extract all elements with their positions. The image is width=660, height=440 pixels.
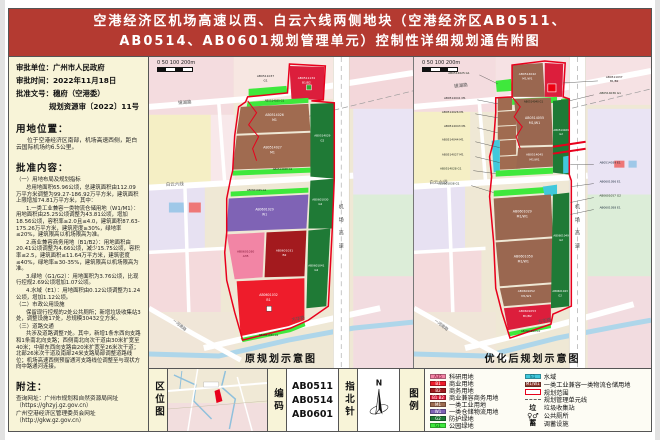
svg-text:B1/B2: B1/B2 [523, 314, 532, 318]
planning-notice-sheet: 空港经济区机场高速以西、白云六线两侧地块（空港经济区AB0511、 AB0514… [8, 8, 652, 432]
location-minimap-svg [168, 369, 267, 431]
location-minimap [168, 369, 268, 431]
info-panel: 审批单位：广州市人民政府 审批时间：2022年11月18日 批准文号：穗府（空港… [9, 57, 149, 431]
page-title-line1: 空港经济区机场高速以西、白云六线两侧地块（空港经济区AB0511、 [9, 12, 651, 32]
legend-swatch: B2 [430, 388, 446, 394]
approval-doc-number-2: 规划资源审〔2022〕11号 [16, 100, 141, 113]
legend-swatch: G1 [430, 423, 446, 429]
svg-text:A35: A35 [243, 254, 249, 258]
svg-text:AB0601056 E1: AB0601056 E1 [600, 180, 621, 184]
content-heading: 批准内容： [16, 160, 141, 174]
legend-column-1: A35科研用地B1商业用地B2商务用地B1 B2商业兼容商务用地M1一类工业用地… [430, 373, 520, 427]
scalebar-text: 0 50 100 200m [157, 60, 195, 66]
approval-date: 审批时间：2022年11月18日 [16, 74, 141, 87]
north-arrow-icon: N [362, 374, 396, 426]
svg-text:B1/B2: B1/B2 [610, 79, 619, 83]
svg-text:AB0514039 E1: AB0514039 E1 [600, 161, 621, 165]
svg-text:AB0601025 G1: AB0601025 G1 [247, 188, 267, 192]
map-title-original: 原规划示意图 [149, 350, 413, 365]
svg-text:AB0514028 G1: AB0514028 G1 [440, 167, 462, 171]
svg-text:G1: G1 [263, 78, 267, 82]
svg-text:G2: G2 [314, 268, 318, 272]
svg-text:W1: W1 [262, 212, 267, 216]
svg-text:AB0601050: AB0601050 [514, 254, 533, 258]
svg-text:G2: G2 [318, 202, 322, 206]
legend-swatch: W1 [430, 409, 446, 415]
svg-text:AB0601030: AB0601030 [312, 198, 328, 202]
legend-swatch: B1 B2 [430, 395, 446, 401]
legend-item: G1公园绿地 [430, 422, 520, 429]
svg-text:AB0514042: AB0514042 [519, 72, 536, 76]
svg-text:AB0514027: AB0514027 [263, 146, 281, 150]
legend-dashed-line [525, 399, 541, 400]
legend-swatch: E1 [525, 374, 541, 380]
page-edge-right [655, 0, 660, 440]
svg-text:AB0514044 M1: AB0514044 M1 [442, 138, 464, 142]
svg-text:AB0514040 G1: AB0514040 G1 [524, 99, 544, 103]
scalebar: 0 50 100 200m [157, 61, 195, 72]
svg-text:AB0514036 G1: AB0514036 G1 [599, 91, 621, 95]
code-label: 编码 [268, 369, 287, 431]
svg-text:G2: G2 [320, 138, 324, 142]
svg-text:M1: M1 [272, 118, 277, 122]
svg-text:M1/W1: M1/W1 [522, 77, 532, 81]
notes-heading: 附注： [16, 379, 141, 393]
svg-text:B2: B2 [283, 253, 287, 257]
approval-doc-number: 批准文号：穗府（空港委） [16, 87, 141, 100]
svg-text:AB0514026 M1: AB0514026 M1 [442, 110, 464, 114]
svg-text:AB0601049: AB0601049 [553, 233, 569, 237]
svg-text:B1: B1 [266, 298, 270, 302]
svg-text:AB0514041 M1: AB0514041 M1 [444, 96, 466, 100]
svg-text:AB0601030: AB0601030 [237, 249, 254, 253]
legend-item-label: 调蓄设施 [544, 419, 569, 428]
svg-text:AB0601029: AB0601029 [255, 208, 273, 212]
svg-text:N: N [375, 379, 381, 388]
optimized-plan-map-svg: AB0514042M1/W1AB0514025 G1AB0511037B1/B2… [414, 57, 651, 368]
optimized-plan-map: AB0514042M1/W1AB0514025 G1AB0511037B1/B2… [414, 57, 651, 368]
legend-item: G2防护绿地 [430, 415, 520, 422]
map-title-optimized: 优化后规划示意图 [414, 350, 651, 365]
svg-text:AB0514025 G1: AB0514025 G1 [448, 71, 470, 75]
legend-swatch: M1/W1 [525, 382, 541, 388]
page-edge-left [0, 0, 5, 440]
svg-text:G2: G2 [558, 294, 562, 298]
svg-text:AB0514028 G1: AB0514028 G1 [273, 167, 293, 171]
svg-text:B1/B2: B1/B2 [302, 81, 311, 85]
legend-swatch: A35 [430, 374, 446, 380]
svg-text:M1/W1: M1/W1 [518, 259, 529, 263]
content-paragraph: （三）道路交通 [16, 324, 141, 331]
legend-item-label: 公园绿地 [449, 421, 474, 430]
svg-text:AB0514026: AB0514026 [265, 113, 283, 117]
svg-text:AB0601033 G1: AB0601033 G1 [259, 333, 279, 337]
svg-text:AB0514029: AB0514029 [314, 134, 330, 138]
svg-text:高: 高 [339, 229, 344, 236]
legend-item: 蓄调蓄设施 [525, 420, 646, 427]
svg-text:M1/W1: M1/W1 [529, 121, 540, 125]
legend-boundary-swatch [525, 389, 541, 395]
svg-text:M1/W1: M1/W1 [521, 294, 531, 298]
legend-symbol-char: 蓄 [525, 418, 541, 428]
content-paragraph: 4.水域（E1）：用地面积由0.12公顷调整为1.24公顷，增加1.12公顷。 [16, 288, 141, 301]
svg-text:AB0601032: AB0601032 [259, 293, 277, 297]
legend-swatch: B1 [430, 381, 446, 387]
svg-text:AB0601052: AB0601052 [518, 289, 535, 293]
original-plan-map: AB0511037G1AB0511134B1/B2AB0514025 G1AB0… [149, 57, 414, 368]
page-title: 空港经济区机场高速以西、白云六线两侧地块（空港经济区AB0511、 AB0514… [9, 9, 651, 57]
scalebar-bar [422, 67, 458, 72]
svg-text:AB0601058 E1: AB0601058 E1 [600, 206, 621, 210]
legend: A35科研用地B1商业用地B2商务用地B1 B2商业兼容商务用地M1一类工业用地… [425, 369, 651, 431]
scalebar-bar [157, 67, 193, 72]
legend-item: B1商业用地 [430, 380, 520, 387]
svg-text:AB0514025 G1: AB0514025 G1 [265, 99, 285, 103]
svg-text:机: 机 [575, 204, 580, 211]
legend-column-2: E1水域M1/W1一类工业兼容一类物流仓储用地规划范围规划管理单元线垃垃圾收集站… [525, 373, 646, 427]
content-paragraph: 共涉及道路调整7处。其中，新增1条东西向支路和1条南北向支路；西侧南北向次干道由… [16, 331, 141, 371]
compass-label: 指北针 [339, 369, 358, 431]
page-title-line2: AB0514、AB0601规划管理单元）控制性详细规划通告附图 [9, 32, 651, 52]
location-body: 位于空港经济区南部，机场高速西侧，距白云国际机场约6.5公里。 [16, 138, 141, 152]
svg-text:速: 速 [575, 243, 580, 249]
svg-text:AB0514045: AB0514045 [526, 153, 543, 157]
legend-swatch: G2 [430, 416, 446, 422]
scalebar-text: 0 50 100 200m [422, 60, 460, 66]
svg-text:M1: M1 [270, 151, 275, 155]
legend-swatch: M1 [430, 402, 446, 408]
location-heading: 用地位置： [16, 121, 141, 135]
unit-code: AB0511 [292, 381, 338, 392]
svg-text:AB0514027 M1: AB0514027 M1 [442, 153, 464, 157]
svg-text:AB0601043: AB0601043 [552, 289, 568, 293]
svg-text:AB0514043 M1: AB0514043 M1 [444, 124, 466, 128]
svg-text:AB0514029: AB0514029 [553, 128, 569, 132]
svg-text:AB0511037: AB0511037 [257, 74, 274, 78]
svg-text:M1/W1: M1/W1 [529, 157, 539, 161]
original-plan-map-svg: AB0511037G1AB0511134B1/B2AB0514025 G1AB0… [149, 57, 413, 368]
svg-text:AB0514055: AB0514055 [525, 116, 544, 120]
svg-text:AB0601054 G1: AB0601054 G1 [521, 329, 541, 333]
svg-text:AB0601053: AB0601053 [519, 309, 536, 313]
svg-text:机: 机 [339, 204, 344, 211]
legend-item: A35科研用地 [430, 373, 520, 380]
svg-text:G2: G2 [559, 238, 563, 242]
unit-code: AB0514 [292, 395, 338, 406]
svg-text:速: 速 [339, 243, 344, 249]
notes-url-1: （https://ghzyj.gz.gov.cn） [16, 403, 141, 410]
svg-text:AB0601041: AB0601041 [308, 263, 324, 267]
svg-text:AB0601057 G2: AB0601057 G2 [599, 194, 621, 198]
legend-label: 图例 [400, 369, 425, 431]
svg-text:高: 高 [575, 229, 580, 236]
unit-code: AB0601 [292, 409, 338, 420]
content-paragraph: （二）市政公用设施 [16, 302, 141, 309]
content-paragraph: 1.一类工业兼容一类物流仓储用地（W1/M1）：用地面积由25.25公顷调整为4… [16, 206, 141, 239]
svg-text:G2: G2 [559, 132, 563, 136]
notes-url-2: （http://gkw.gz.gov.cn） [16, 418, 141, 425]
svg-text:场: 场 [575, 217, 580, 224]
content-paragraph: 保留现行控规的2处公共厕所；新增垃圾收集站3处，调整设施17处，总规模30432… [16, 310, 141, 323]
legend-item: W1一类仓储物流用地 [430, 408, 520, 415]
content-paragraph: 总用地面积65.96公顷，总建筑面积由112.09万平方米调整为99.27-18… [16, 185, 141, 205]
north-arrow-cell: N [358, 369, 400, 431]
scalebar: 0 50 100 200m [422, 61, 460, 72]
bottom-strip: 区位图 编码 [149, 369, 651, 431]
svg-text:场: 场 [339, 216, 344, 223]
content-paragraph: （一）用地布局及规划指标 [16, 177, 141, 184]
maps-area: AB0511037G1AB0511134B1/B2AB0514025 G1AB0… [149, 57, 651, 431]
unit-codes: AB0511AB0514AB0601 [287, 369, 339, 431]
approval-unit: 审批单位：广州市人民政府 [16, 61, 141, 74]
location-map-label: 区位图 [149, 369, 168, 431]
svg-text:AB0601031: AB0601031 [276, 248, 293, 252]
content-paragraph: 2.商业兼容商务用地（B1/B2）：用地面积由20.41公顷调整为4.66公顷，… [16, 240, 141, 273]
svg-text:AB0601029: AB0601029 [513, 210, 532, 214]
content-paragraph: 3.绿地（G1/G2）：用地面积为3.76公顷，比现行控规2.69公顷增加1.0… [16, 274, 141, 287]
svg-text:M1/W1: M1/W1 [517, 215, 528, 219]
svg-text:AB0511134: AB0511134 [298, 76, 315, 80]
